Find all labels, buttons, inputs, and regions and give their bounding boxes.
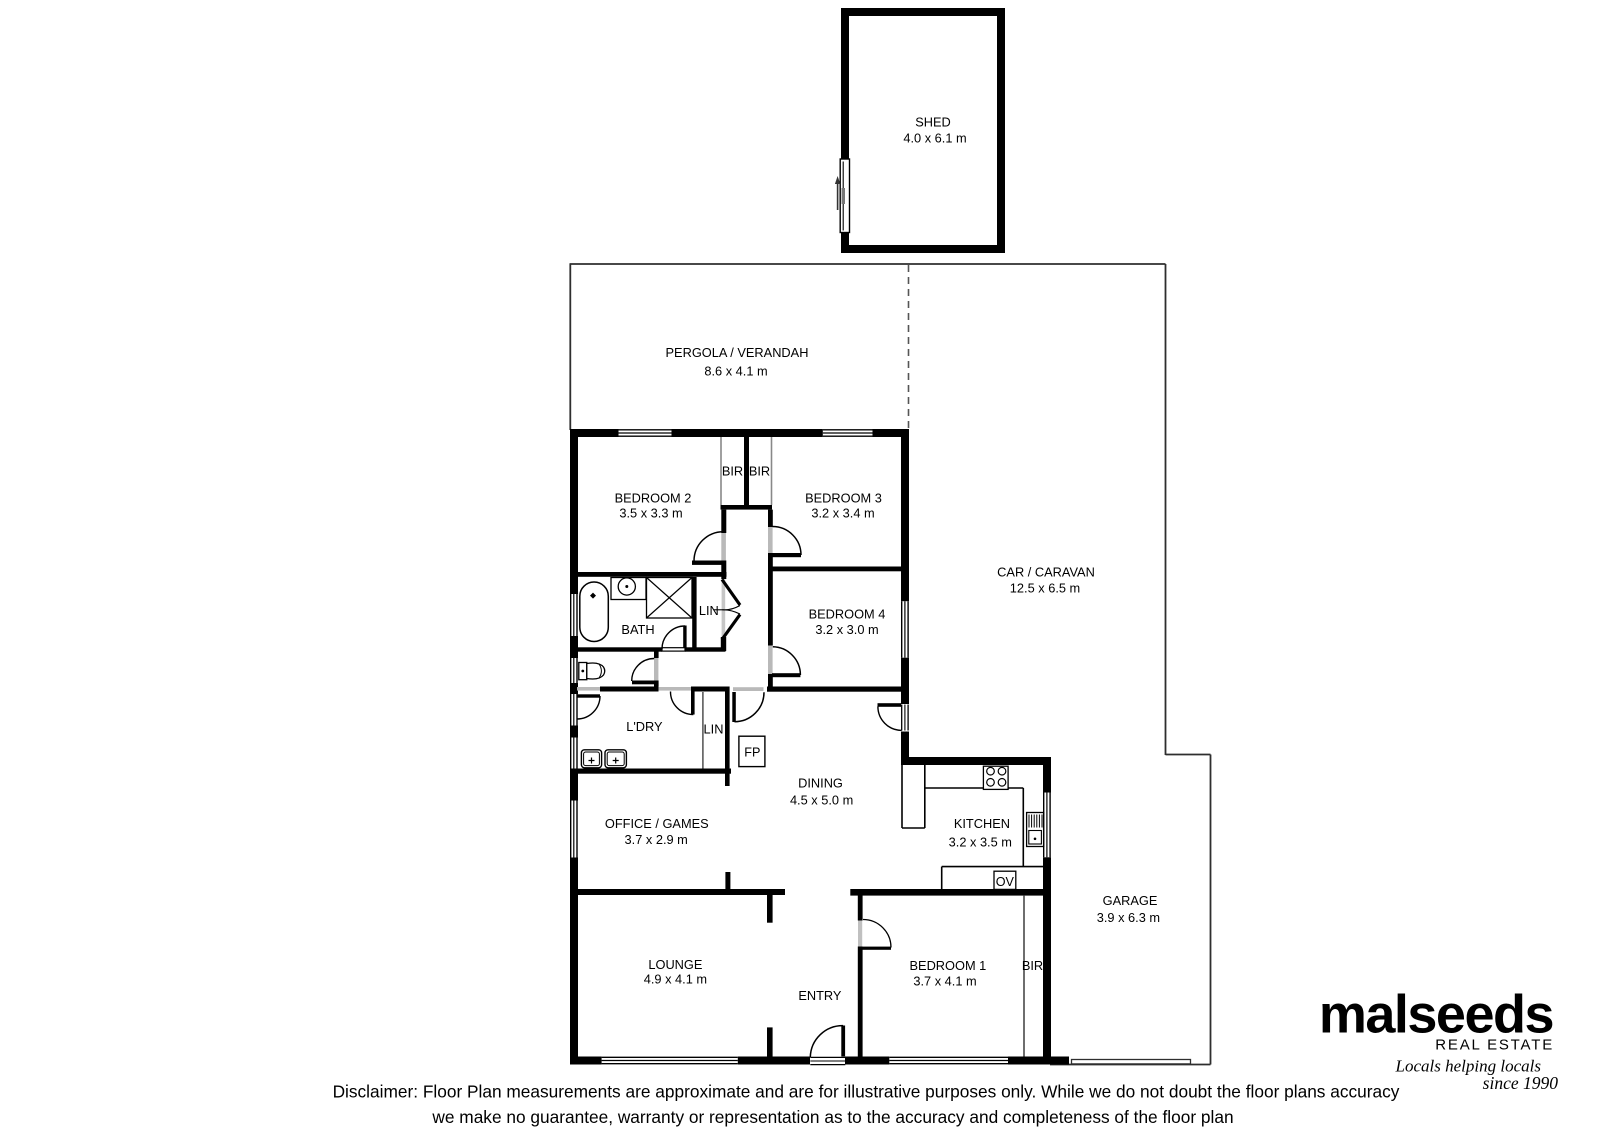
svg-text:FP: FP: [744, 745, 760, 759]
svg-text:ENTRY: ENTRY: [798, 988, 842, 1003]
svg-text:3.7 x 4.1 m: 3.7 x 4.1 m: [913, 973, 976, 988]
svg-text:REAL ESTATE: REAL ESTATE: [1435, 1037, 1554, 1054]
svg-text:BEDROOM 2: BEDROOM 2: [615, 490, 692, 505]
svg-text:3.7 x 2.9 m: 3.7 x 2.9 m: [625, 832, 688, 847]
svg-text:SHED: SHED: [915, 115, 951, 130]
svg-text:4.9 x 4.1 m: 4.9 x 4.1 m: [644, 972, 707, 987]
svg-text:PERGOLA / VERANDAH: PERGOLA / VERANDAH: [666, 345, 809, 360]
svg-text:8.6 x 4.1 m: 8.6 x 4.1 m: [704, 364, 767, 379]
svg-text:BEDROOM 1: BEDROOM 1: [910, 958, 987, 973]
svg-text:OV: OV: [996, 875, 1015, 889]
svg-text:3.2 x 3.4 m: 3.2 x 3.4 m: [811, 505, 874, 520]
svg-text:LOUNGE: LOUNGE: [648, 957, 702, 972]
svg-text:DINING: DINING: [798, 776, 843, 791]
svg-text:BATH: BATH: [621, 622, 654, 637]
svg-text:BEDROOM 3: BEDROOM 3: [805, 490, 882, 505]
svg-text:3.5 x 3.3 m: 3.5 x 3.3 m: [619, 505, 682, 520]
svg-text:we make no guarantee, warranty: we make no guarantee, warranty or repres…: [431, 1107, 1233, 1127]
svg-text:3.2 x 3.5 m: 3.2 x 3.5 m: [949, 835, 1012, 850]
svg-text:malseeds: malseeds: [1319, 985, 1553, 1045]
svg-text:BIR: BIR: [722, 464, 743, 479]
svg-text:since 1990: since 1990: [1483, 1073, 1559, 1093]
svg-text:LIN: LIN: [704, 722, 724, 737]
svg-text:LIN: LIN: [699, 603, 719, 618]
svg-text:BIR: BIR: [749, 464, 770, 479]
svg-text:GARAGE: GARAGE: [1103, 893, 1158, 908]
svg-text:BIR: BIR: [1022, 958, 1043, 973]
svg-text:Disclaimer: Floor Plan measure: Disclaimer: Floor Plan measurements are …: [333, 1082, 1400, 1102]
svg-text:4.5 x 5.0 m: 4.5 x 5.0 m: [790, 793, 853, 808]
svg-text:3.9 x 6.3 m: 3.9 x 6.3 m: [1097, 910, 1160, 925]
svg-text:KITCHEN: KITCHEN: [954, 816, 1010, 831]
svg-text:CAR / CARAVAN: CAR / CARAVAN: [997, 565, 1095, 580]
svg-text:OFFICE / GAMES: OFFICE / GAMES: [605, 816, 709, 831]
svg-text:12.5 x 6.5 m: 12.5 x 6.5 m: [1010, 581, 1080, 596]
svg-text:3.2 x 3.0 m: 3.2 x 3.0 m: [815, 622, 878, 637]
svg-text:L'DRY: L'DRY: [626, 719, 663, 734]
svg-text:4.0 x 6.1 m: 4.0 x 6.1 m: [903, 131, 966, 146]
svg-text:BEDROOM 4: BEDROOM 4: [809, 607, 886, 622]
